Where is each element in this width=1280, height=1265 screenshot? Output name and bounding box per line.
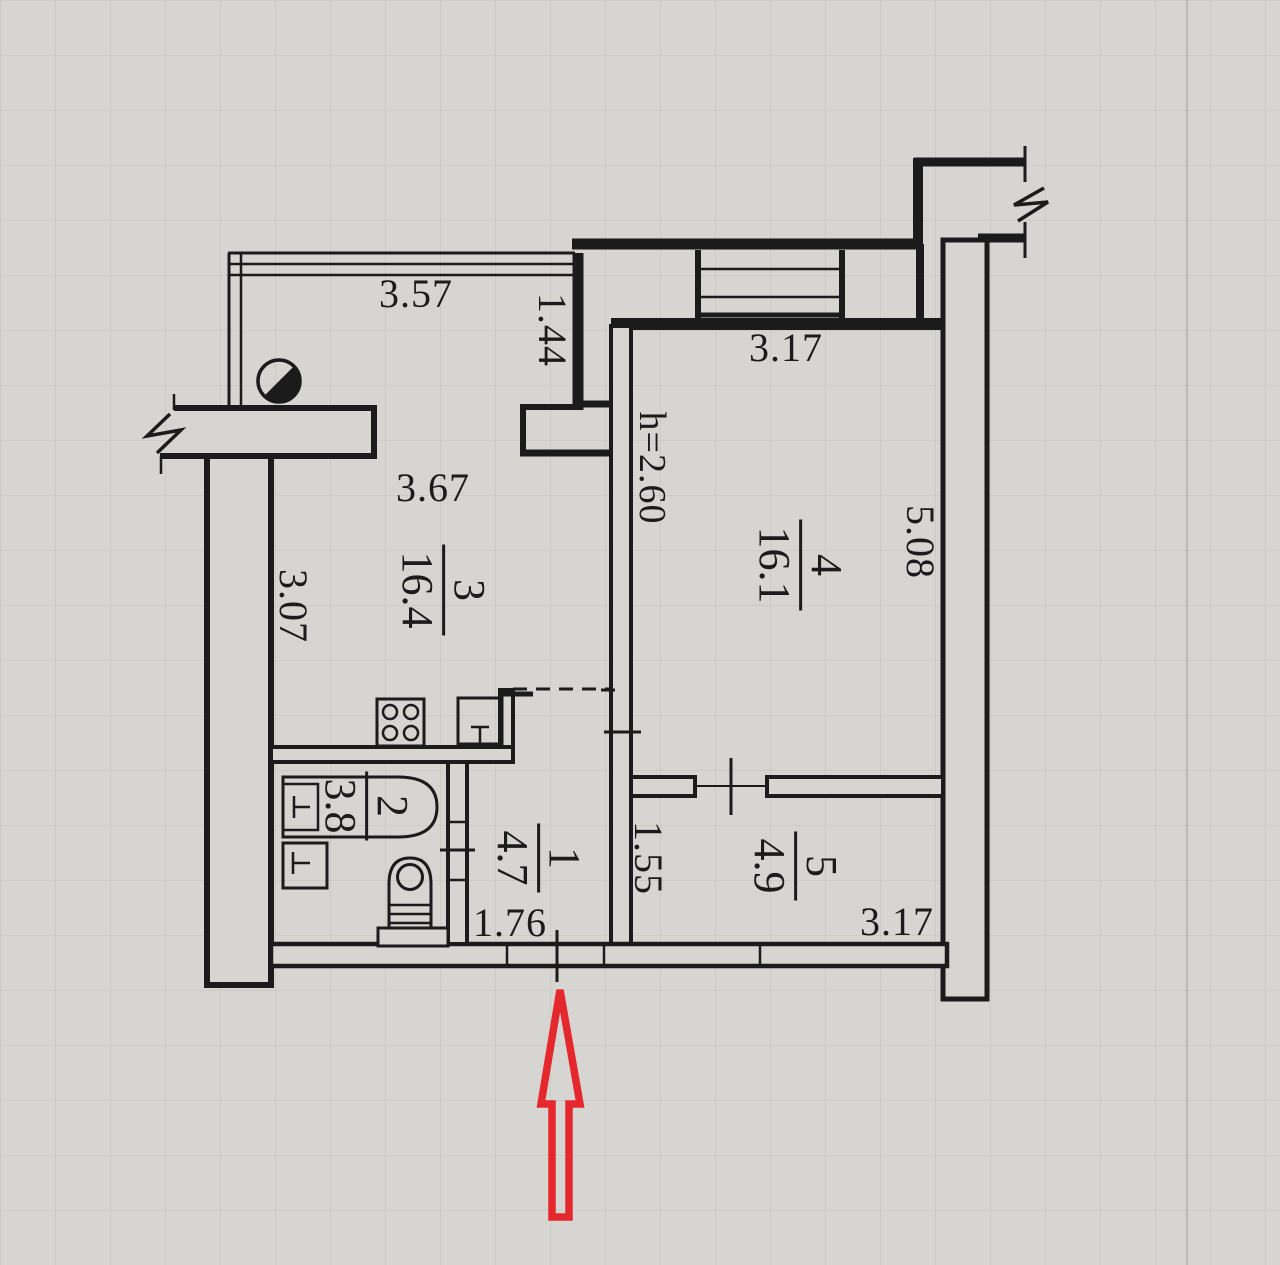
room-5-number: 5 bbox=[798, 851, 845, 881]
washbasin-icon bbox=[283, 843, 327, 888]
room-2-number: 2 bbox=[369, 791, 416, 821]
room-1-number: 1 bbox=[541, 843, 588, 873]
dim-entrance-width: 1.76 bbox=[473, 903, 547, 943]
room-5-label: 5 4.9 bbox=[746, 832, 844, 901]
plan-drawing bbox=[0, 0, 1280, 1265]
dim-room4-top-width: 3.17 bbox=[749, 328, 823, 368]
room-3-label: 3 16.4 bbox=[394, 545, 492, 636]
dim-balcony-step: 1.44 bbox=[532, 293, 572, 367]
kitchen-sink-icon bbox=[458, 698, 502, 744]
room-5-area: 4.9 bbox=[746, 832, 798, 901]
dim-room4-right-height: 5.08 bbox=[900, 505, 940, 579]
entrance-arrow-annotation bbox=[541, 990, 580, 1217]
room-1-area: 4.7 bbox=[489, 824, 541, 893]
dim-room3-left-height: 3.07 bbox=[273, 569, 313, 643]
wall-break-mark bbox=[1014, 188, 1048, 221]
wall-right-outer bbox=[943, 240, 987, 999]
room-2-label: 2 3.8 bbox=[317, 772, 415, 841]
dim-ceiling-height: h=2.60 bbox=[633, 412, 671, 525]
stove-icon bbox=[377, 699, 424, 746]
wall-left-outer bbox=[207, 456, 271, 985]
room-4-number: 4 bbox=[803, 550, 850, 580]
dim-room5-bottom-width: 3.17 bbox=[860, 902, 934, 942]
room4-window bbox=[695, 250, 845, 318]
room-2-area: 3.8 bbox=[317, 772, 369, 841]
orientation-circle-icon bbox=[258, 360, 300, 402]
room-4-label: 4 16.1 bbox=[751, 520, 849, 611]
dim-room5-left-height: 1.55 bbox=[628, 821, 668, 895]
room-3-number: 3 bbox=[446, 575, 493, 605]
dim-room3-top-width: 3.67 bbox=[396, 468, 470, 508]
room-1-label: 1 4.7 bbox=[489, 824, 587, 893]
wall-room4-room5 bbox=[631, 758, 943, 815]
toilet-icon bbox=[378, 858, 448, 946]
dim-balcony-width: 3.57 bbox=[379, 274, 453, 314]
room-3-area: 16.4 bbox=[394, 545, 446, 636]
room-4-area: 16.1 bbox=[751, 520, 803, 611]
floor-plan: 3.57 1.44 3.17 3.67 3.07 5.08 h=2.60 1.5… bbox=[0, 0, 1280, 1265]
